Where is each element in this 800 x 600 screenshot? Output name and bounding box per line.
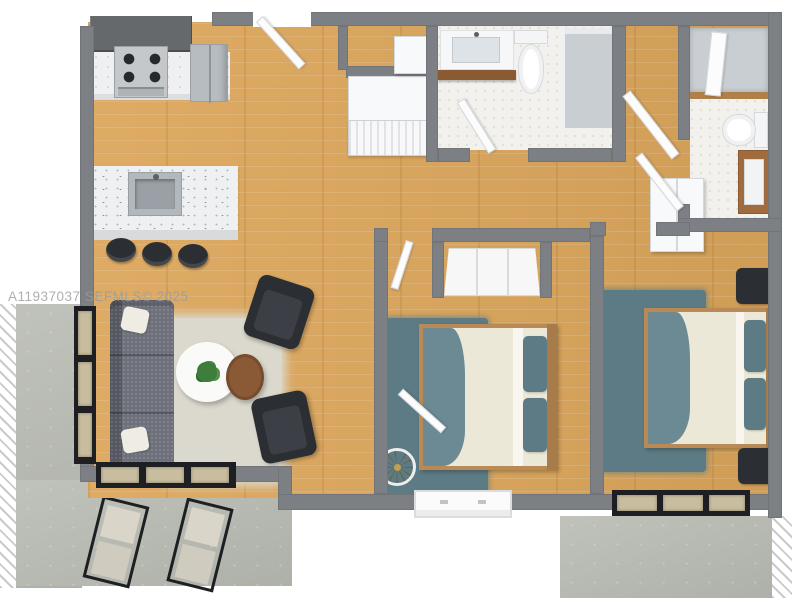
wall-bedroom-divider [590,236,604,494]
vanity-sink-basin [452,37,500,63]
patio-right [560,516,774,598]
window-pane [78,362,92,406]
island-faucet [153,174,159,180]
wall-closet-stub-left [432,242,444,298]
bed-pillow [523,398,547,452]
side-table [226,354,264,400]
wall-bedroom1-top-a [374,228,388,242]
bed-pillow [744,320,766,372]
wall-right [768,12,782,518]
mls-watermark: A11937037 SEFMLS© 2025 [8,289,189,304]
bedroom-1-closet-doors [444,248,540,296]
island-sink [128,172,182,216]
wall-bath2-bottom [678,218,782,232]
bed-sheet-fold [736,312,744,444]
toilet-bowl [722,114,756,146]
bed-blanket [648,312,690,444]
patio-hatch-border-right [772,516,792,598]
island-sink-basin [135,179,175,209]
refrigerator [190,44,228,102]
lounge-cushion [184,507,225,547]
toilet-tank [514,30,548,44]
bathroom-1-shower [562,28,612,128]
kitchen-island-face [90,230,238,240]
accent-chair-seat [261,404,307,455]
oven-door [118,87,164,96]
wall-closet-stub-right [540,242,552,298]
bathroom-2-shower-curb [690,92,768,99]
window-pane [78,311,92,355]
wall-bedroom1-left [374,236,388,494]
window-latch [440,500,448,504]
bedroom-2-sliding-door [612,490,750,516]
wall-bedroom2-top-b [656,222,690,236]
slider-pane [617,495,657,511]
wall-hall-stub [338,26,348,70]
slider-pane [146,467,184,483]
sofa-pillow [120,426,150,454]
wall-bedroom1-top-b [432,228,590,242]
floor-plan-canvas: A11937037 SEFMLS© 2025 [0,0,800,600]
accent-chair-seat [253,289,304,341]
bed-sheet-fold [513,328,523,466]
living-room-sliding-door [96,462,236,488]
lounge-cushion [100,505,141,544]
lounge-cushion [175,544,216,585]
wall-bath2-left-a [678,26,690,140]
toilet-tank [754,112,768,148]
window-latch [478,500,486,504]
bar-stool [106,238,136,262]
bathroom-2-vanity [738,150,770,214]
wall-bedroom2-top-a [590,222,606,236]
bed-pillow [744,378,766,430]
bathroom-1-wood-shelf [438,70,516,80]
wall-bath1-bottom-b [528,148,612,162]
refrigerator-seam [209,45,211,103]
bar-stool [178,244,208,268]
wall-bath1-bottom-a [438,148,470,162]
bedroom-2-bed [644,308,774,448]
bar-stool [142,242,172,266]
sofa-pillow [120,306,150,335]
hall-closet-louvered-doors [348,120,430,156]
vanity-faucet [474,32,479,37]
bedroom-2-closet [650,178,704,252]
slider-pane [663,495,703,511]
window-pane [78,413,92,457]
bedroom-1-bed [419,324,557,470]
slider-pane [709,495,745,511]
potted-plant [197,362,217,382]
bathroom-1-vanity [440,30,514,70]
kitchen-range [114,46,168,98]
bed-headboard [547,324,557,470]
bedroom-1-window [414,490,512,518]
bathroom-2-shower [690,28,768,92]
vanity-sink-basin [744,159,764,205]
slider-pane [101,467,139,483]
sofa [110,300,174,474]
hall-closet-interior [348,76,430,122]
living-room-side-windows [74,306,96,464]
fan-hub [394,464,401,471]
wall-bath1-left [426,26,438,162]
bed-blanket [423,328,465,466]
slider-pane [191,467,229,483]
toilet-bowl [518,44,544,94]
bed-pillow [523,336,547,392]
lounge-cushion [91,541,132,581]
